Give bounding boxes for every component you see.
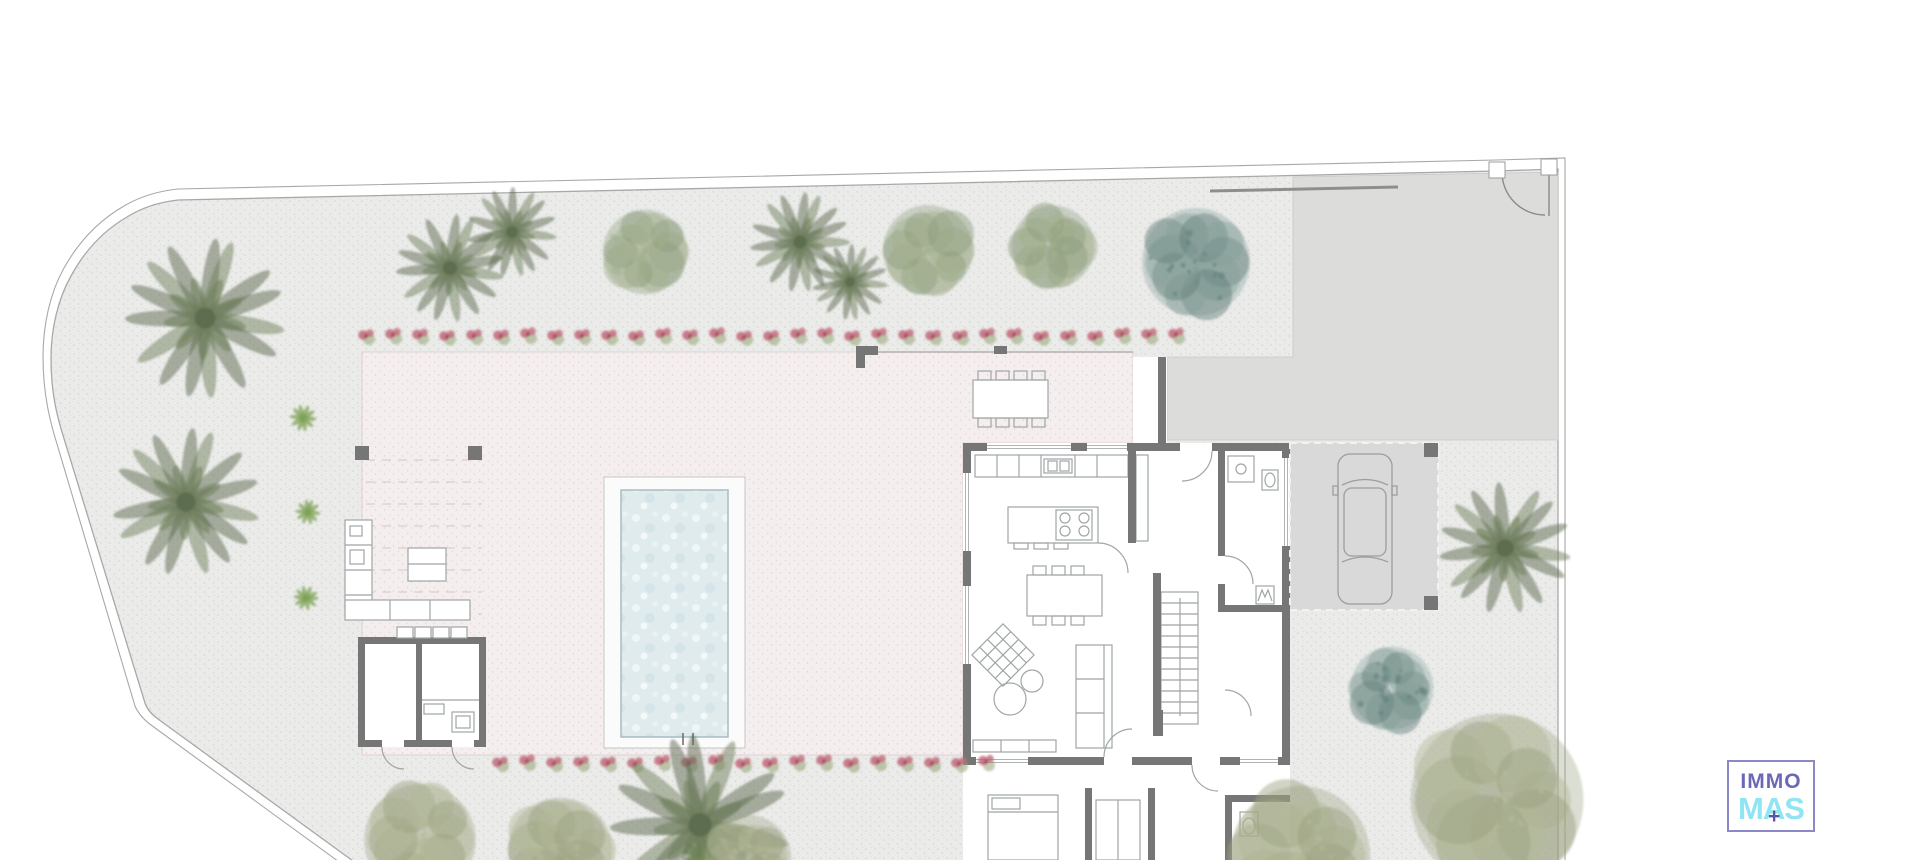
round-tree <box>603 210 690 295</box>
sofa <box>1076 645 1112 748</box>
site-plan-page: IMMO MAS+ <box>0 0 1920 860</box>
kitchen-island <box>1008 507 1098 549</box>
logo-immo-text: IMMO <box>1729 771 1813 792</box>
logo-plus-icon: + <box>1768 806 1780 827</box>
logo-mas-text: MAS+ <box>1729 793 1813 824</box>
carport <box>1290 443 1438 610</box>
swimming-pool <box>604 477 745 748</box>
immomas-logo: IMMO MAS+ <box>1727 760 1815 832</box>
floor-plan-drawing <box>0 0 1920 860</box>
dining-table <box>1027 566 1102 625</box>
pool-water <box>621 490 728 737</box>
